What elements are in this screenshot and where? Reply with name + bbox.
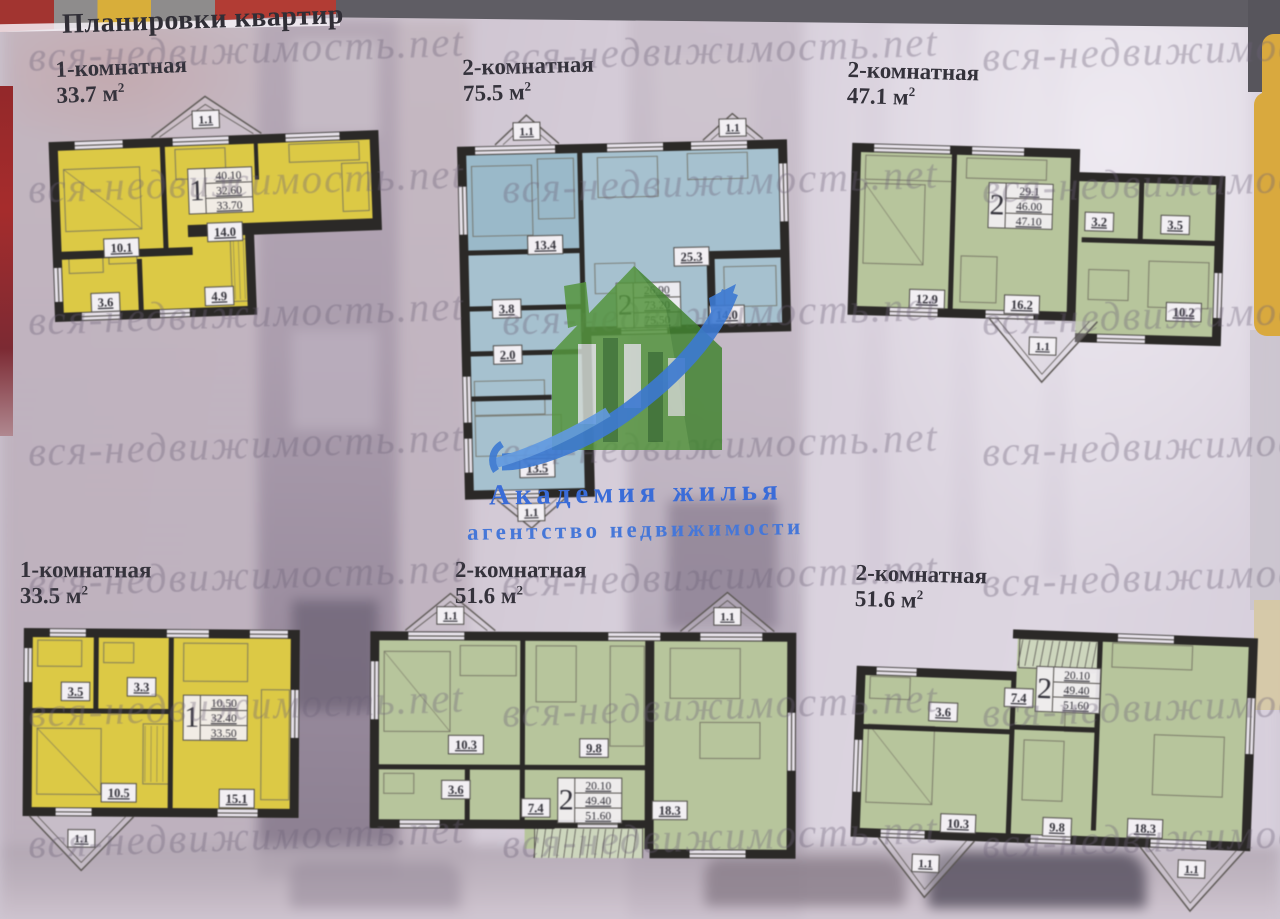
svg-text:2: 2 bbox=[559, 783, 574, 816]
svg-text:1.1: 1.1 bbox=[725, 122, 740, 134]
svg-text:20.10: 20.10 bbox=[1064, 670, 1091, 683]
svg-text:47.10: 47.10 bbox=[1016, 216, 1042, 229]
svg-text:1.1: 1.1 bbox=[198, 114, 213, 127]
svg-text:1.1: 1.1 bbox=[1035, 341, 1050, 353]
svg-text:1.1: 1.1 bbox=[1184, 864, 1199, 877]
svg-text:10.3: 10.3 bbox=[947, 817, 969, 832]
svg-text:10.3: 10.3 bbox=[455, 738, 477, 752]
svg-text:9.8: 9.8 bbox=[586, 742, 602, 756]
svg-text:3.2: 3.2 bbox=[1091, 215, 1107, 229]
svg-text:1.1: 1.1 bbox=[519, 126, 534, 138]
svg-text:3.6: 3.6 bbox=[448, 783, 464, 797]
svg-text:10.5: 10.5 bbox=[108, 786, 130, 800]
svg-text:1.1: 1.1 bbox=[443, 611, 458, 623]
svg-text:15.1: 15.1 bbox=[226, 792, 248, 806]
svg-text:7.4: 7.4 bbox=[528, 801, 544, 815]
svg-text:49.40: 49.40 bbox=[585, 796, 611, 808]
svg-text:10.1: 10.1 bbox=[110, 241, 132, 256]
svg-text:1.1: 1.1 bbox=[720, 612, 735, 624]
svg-text:20.10: 20.10 bbox=[585, 781, 611, 793]
svg-text:1.1: 1.1 bbox=[918, 858, 933, 871]
svg-text:3.5: 3.5 bbox=[1167, 218, 1183, 232]
svg-text:14.0: 14.0 bbox=[214, 225, 236, 240]
